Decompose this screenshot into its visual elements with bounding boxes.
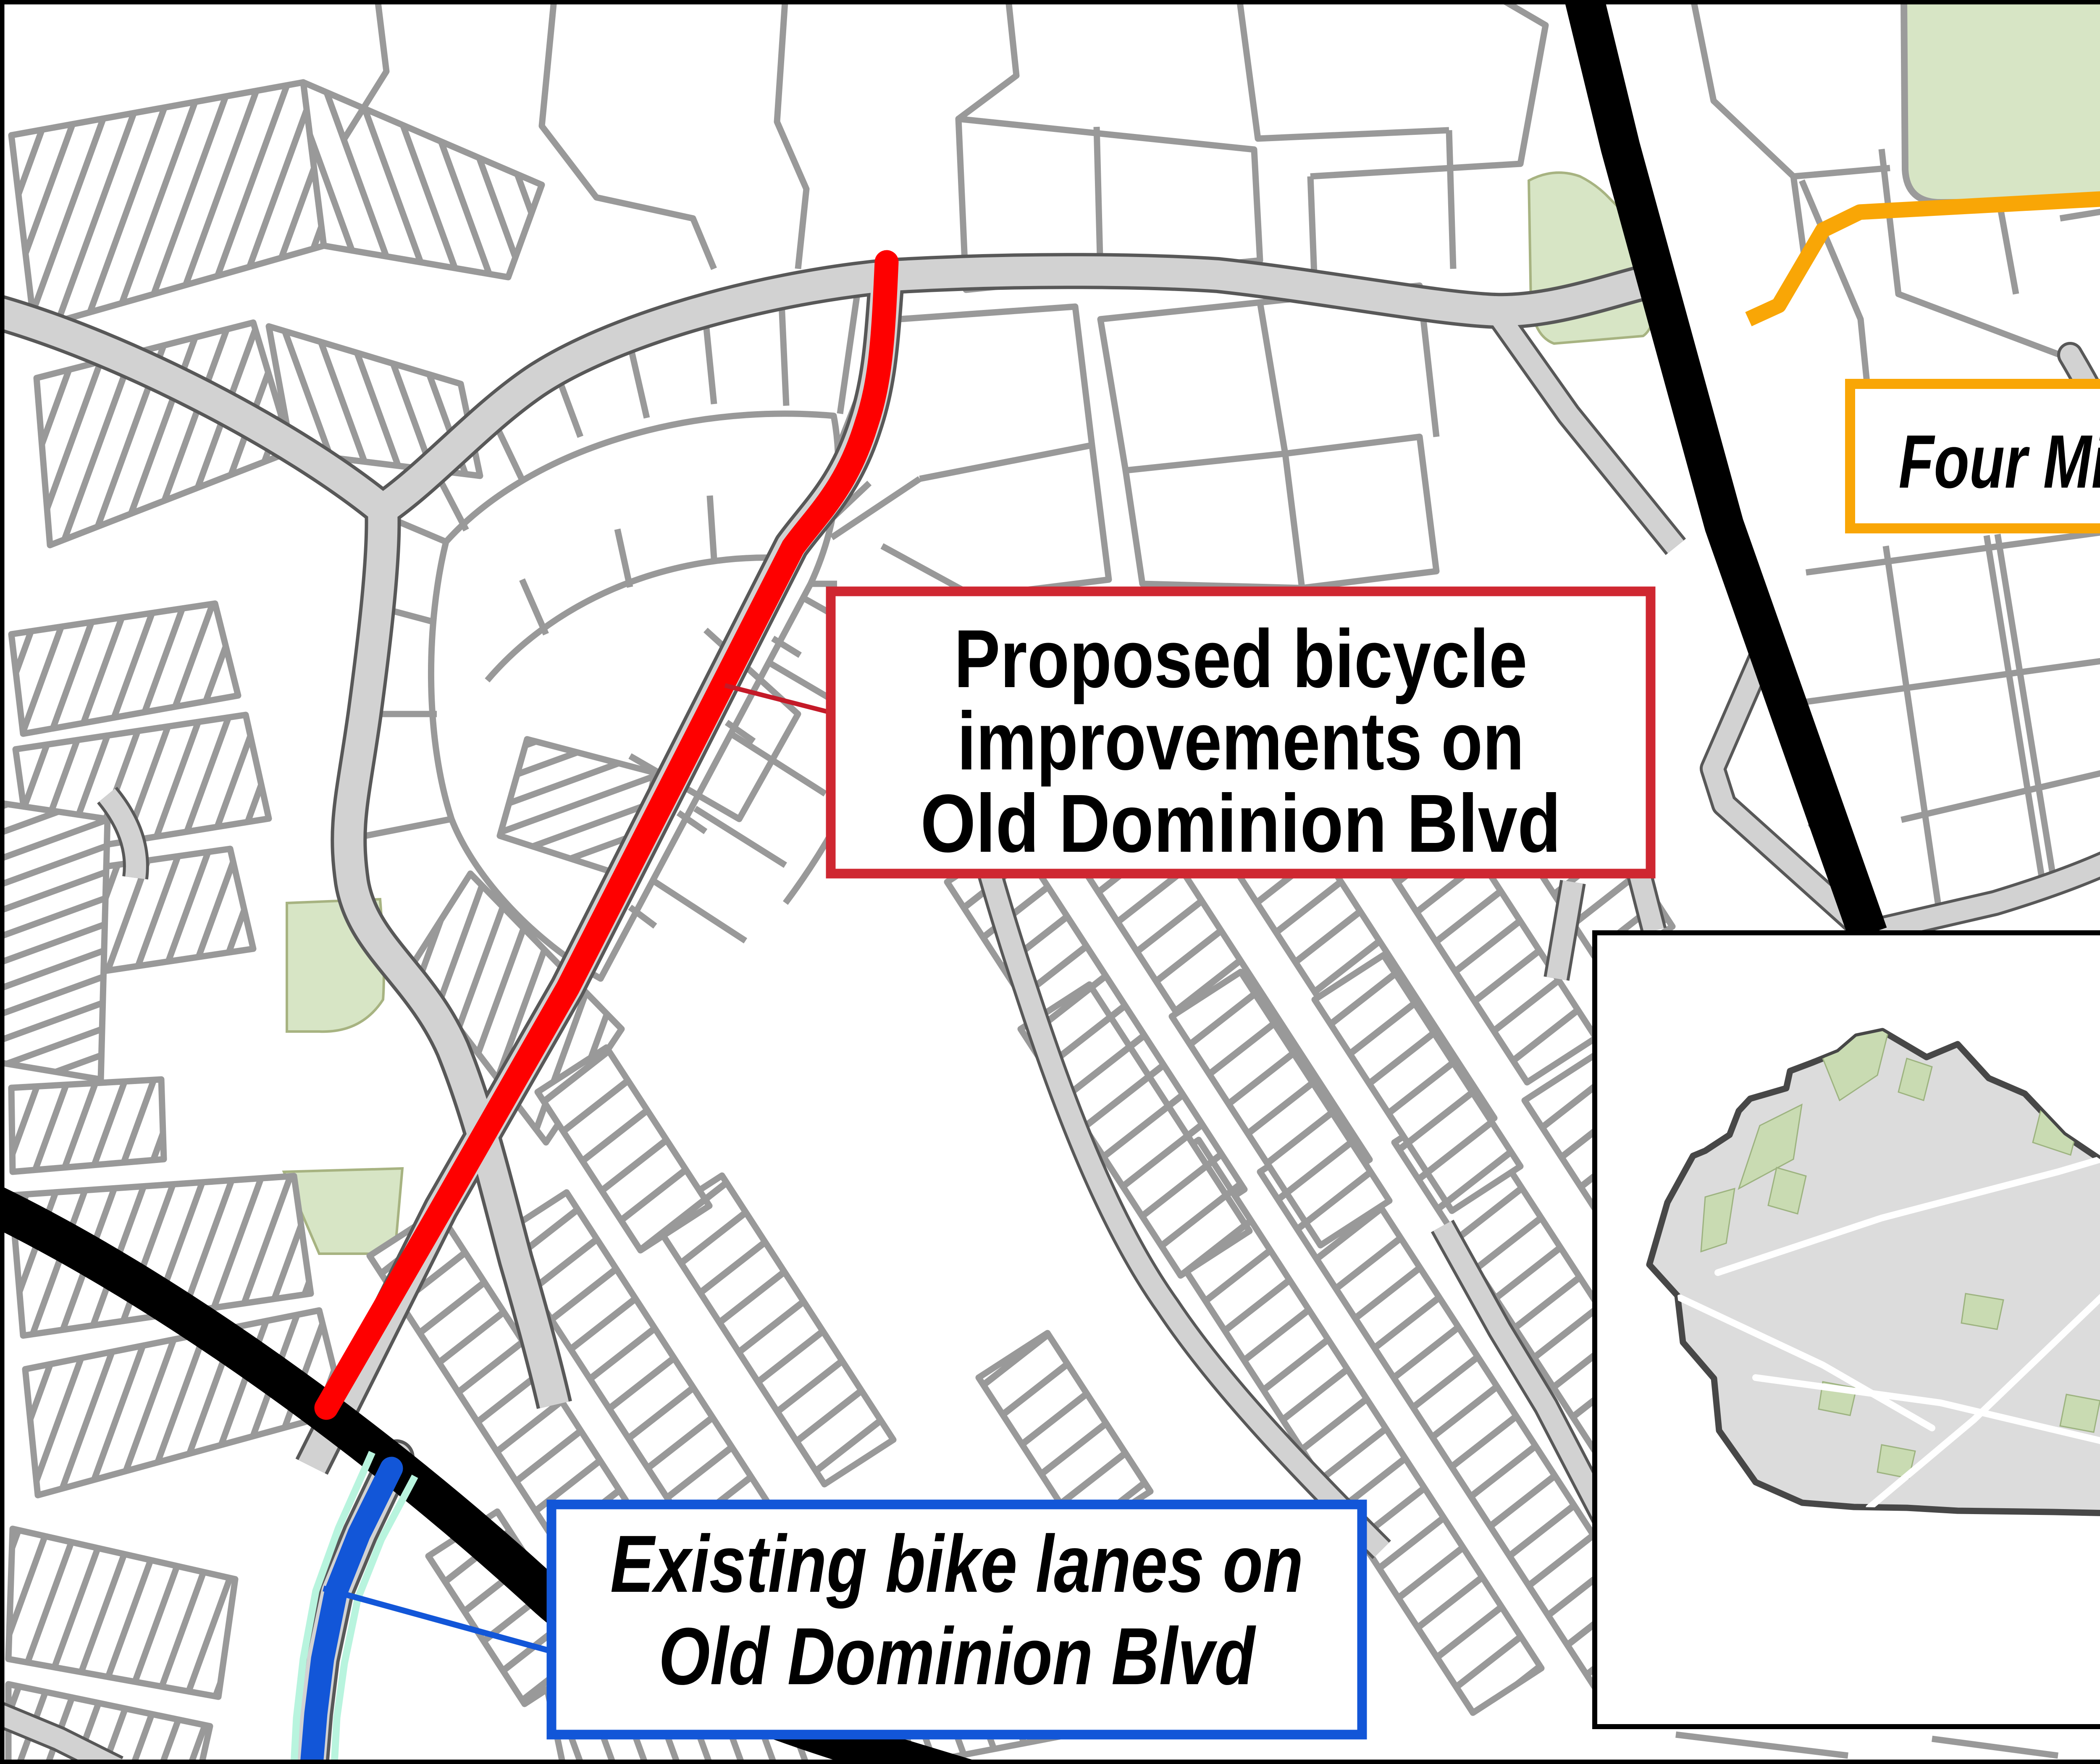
svg-text:Old Dominion Blvd: Old Dominion Blvd (921, 777, 1561, 869)
svg-text:Four Mile Run Trail: Four Mile Run Trail (1899, 420, 2100, 504)
svg-text:improvements on: improvements on (957, 695, 1524, 787)
svg-text:Existing bike lanes on: Existing bike lanes on (610, 1518, 1303, 1609)
svg-text:Proposed bicycle: Proposed bicycle (954, 613, 1528, 705)
svg-text:Old Dominion Blvd: Old Dominion Blvd (659, 1611, 1256, 1701)
